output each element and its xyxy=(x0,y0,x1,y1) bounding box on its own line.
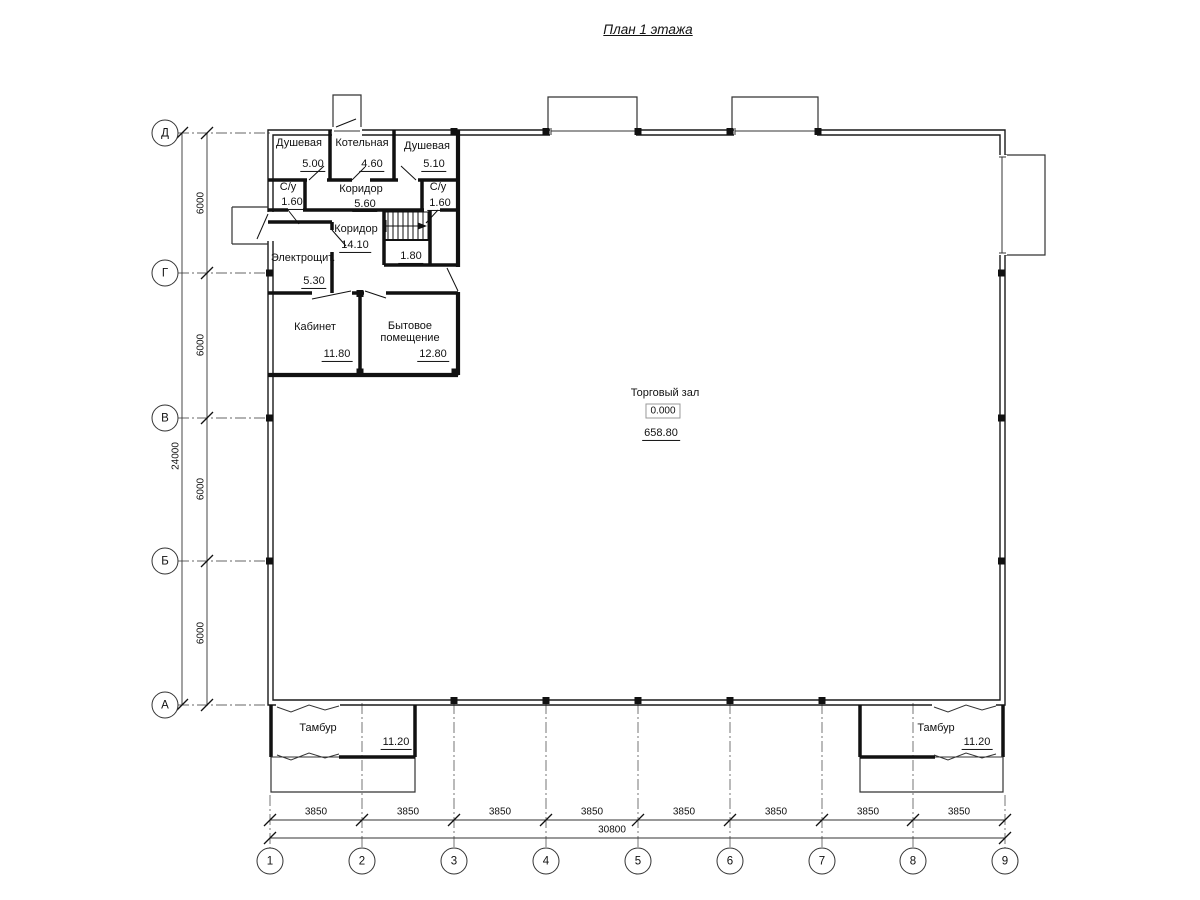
dim-horizontal-6: 3850 xyxy=(765,807,787,818)
axis-circle-col-7: 7 xyxy=(809,848,836,875)
room-area-office: 11.80 xyxy=(322,348,353,360)
axis-circle-row-g: Г xyxy=(152,260,179,287)
dim-horizontal-5: 3850 xyxy=(673,807,695,818)
axis-circle-row-v: В xyxy=(152,405,179,432)
axis-circle-row-b: Б xyxy=(152,548,179,575)
room-area-under-stairs: 1.80 xyxy=(398,250,423,262)
room-area-corridor-main: 14.10 xyxy=(339,239,371,251)
room-label-wc-right: С/у xyxy=(430,181,447,193)
page-title: План 1 этажа xyxy=(603,22,692,37)
dim-horizontal-7: 3850 xyxy=(857,807,879,818)
axis-circle-col-2: 2 xyxy=(349,848,376,875)
axis-circle-row-a: А xyxy=(152,692,179,719)
room-label-wc-left: С/у xyxy=(280,181,297,193)
room-area-boiler: 4.60 xyxy=(359,158,384,170)
room-area-shower-right: 5.10 xyxy=(421,158,446,170)
room-area-shower-left: 5.00 xyxy=(300,158,325,170)
dim-horizontal-total: 30800 xyxy=(598,825,626,836)
room-label-vestibule-right: Тамбур xyxy=(917,722,954,734)
floor-plan-page: План 1 этажа Душевая 5.00 Котельная 4.60… xyxy=(0,0,1200,900)
dim-horizontal-1: 3850 xyxy=(305,807,327,818)
axis-circle-col-1: 1 xyxy=(257,848,284,875)
dimension-ticks xyxy=(176,127,1011,844)
room-area-utility: 12.80 xyxy=(417,348,449,360)
room-label-shower-left: Душевая xyxy=(276,137,322,149)
axis-circle-col-4: 4 xyxy=(533,848,560,875)
exterior-walls xyxy=(268,130,1005,705)
wall-pilasters xyxy=(266,128,1005,704)
axis-circle-row-d: Д xyxy=(152,120,179,147)
dim-horizontal-4: 3850 xyxy=(581,807,603,818)
axis-circle-col-5: 5 xyxy=(625,848,652,875)
room-label-electrical: Электрощит. xyxy=(271,252,335,264)
room-area-wc-left: 1.60 xyxy=(279,196,304,208)
vestibule-thresholds xyxy=(271,705,1003,760)
dim-horizontal-8: 3850 xyxy=(948,807,970,818)
grid-axis-lines xyxy=(178,133,1005,848)
wall-openings xyxy=(265,127,1007,712)
dim-vertical-4: 6000 xyxy=(196,622,207,644)
room-area-electrical: 5.30 xyxy=(301,275,326,287)
axis-circle-col-9: 9 xyxy=(992,848,1019,875)
room-label-corridor-main: Коридор xyxy=(334,223,377,235)
axis-circle-col-6: 6 xyxy=(717,848,744,875)
axis-circle-col-8: 8 xyxy=(900,848,927,875)
room-label-vestibule-left: Тамбур xyxy=(299,722,336,734)
dim-vertical-2: 6000 xyxy=(196,334,207,356)
dim-horizontal-3: 3850 xyxy=(489,807,511,818)
dim-vertical-1: 6000 xyxy=(196,192,207,214)
room-label-utility: Бытовое помещение xyxy=(380,320,439,344)
elevation-mark: 0.000 xyxy=(645,404,680,419)
dim-horizontal-2: 3850 xyxy=(397,807,419,818)
dim-vertical-3: 6000 xyxy=(196,478,207,500)
room-area-wc-right: 1.60 xyxy=(427,197,452,209)
axis-circle-col-3: 3 xyxy=(441,848,468,875)
room-area-vestibule-left: 11.20 xyxy=(381,736,412,748)
room-label-corridor-small: Коридор xyxy=(339,183,382,195)
room-area-vestibule-right: 11.20 xyxy=(962,736,993,748)
dim-vertical-total: 24000 xyxy=(171,442,182,470)
room-label-office: Кабинет xyxy=(294,321,336,333)
room-label-shower-right: Душевая xyxy=(404,140,450,152)
room-area-corridor-small: 5.60 xyxy=(352,198,377,210)
room-label-boiler: Котельная xyxy=(335,137,388,149)
room-area-sales-hall: 658.80 xyxy=(642,427,680,439)
room-label-sales-hall: Торговый зал xyxy=(631,387,700,399)
